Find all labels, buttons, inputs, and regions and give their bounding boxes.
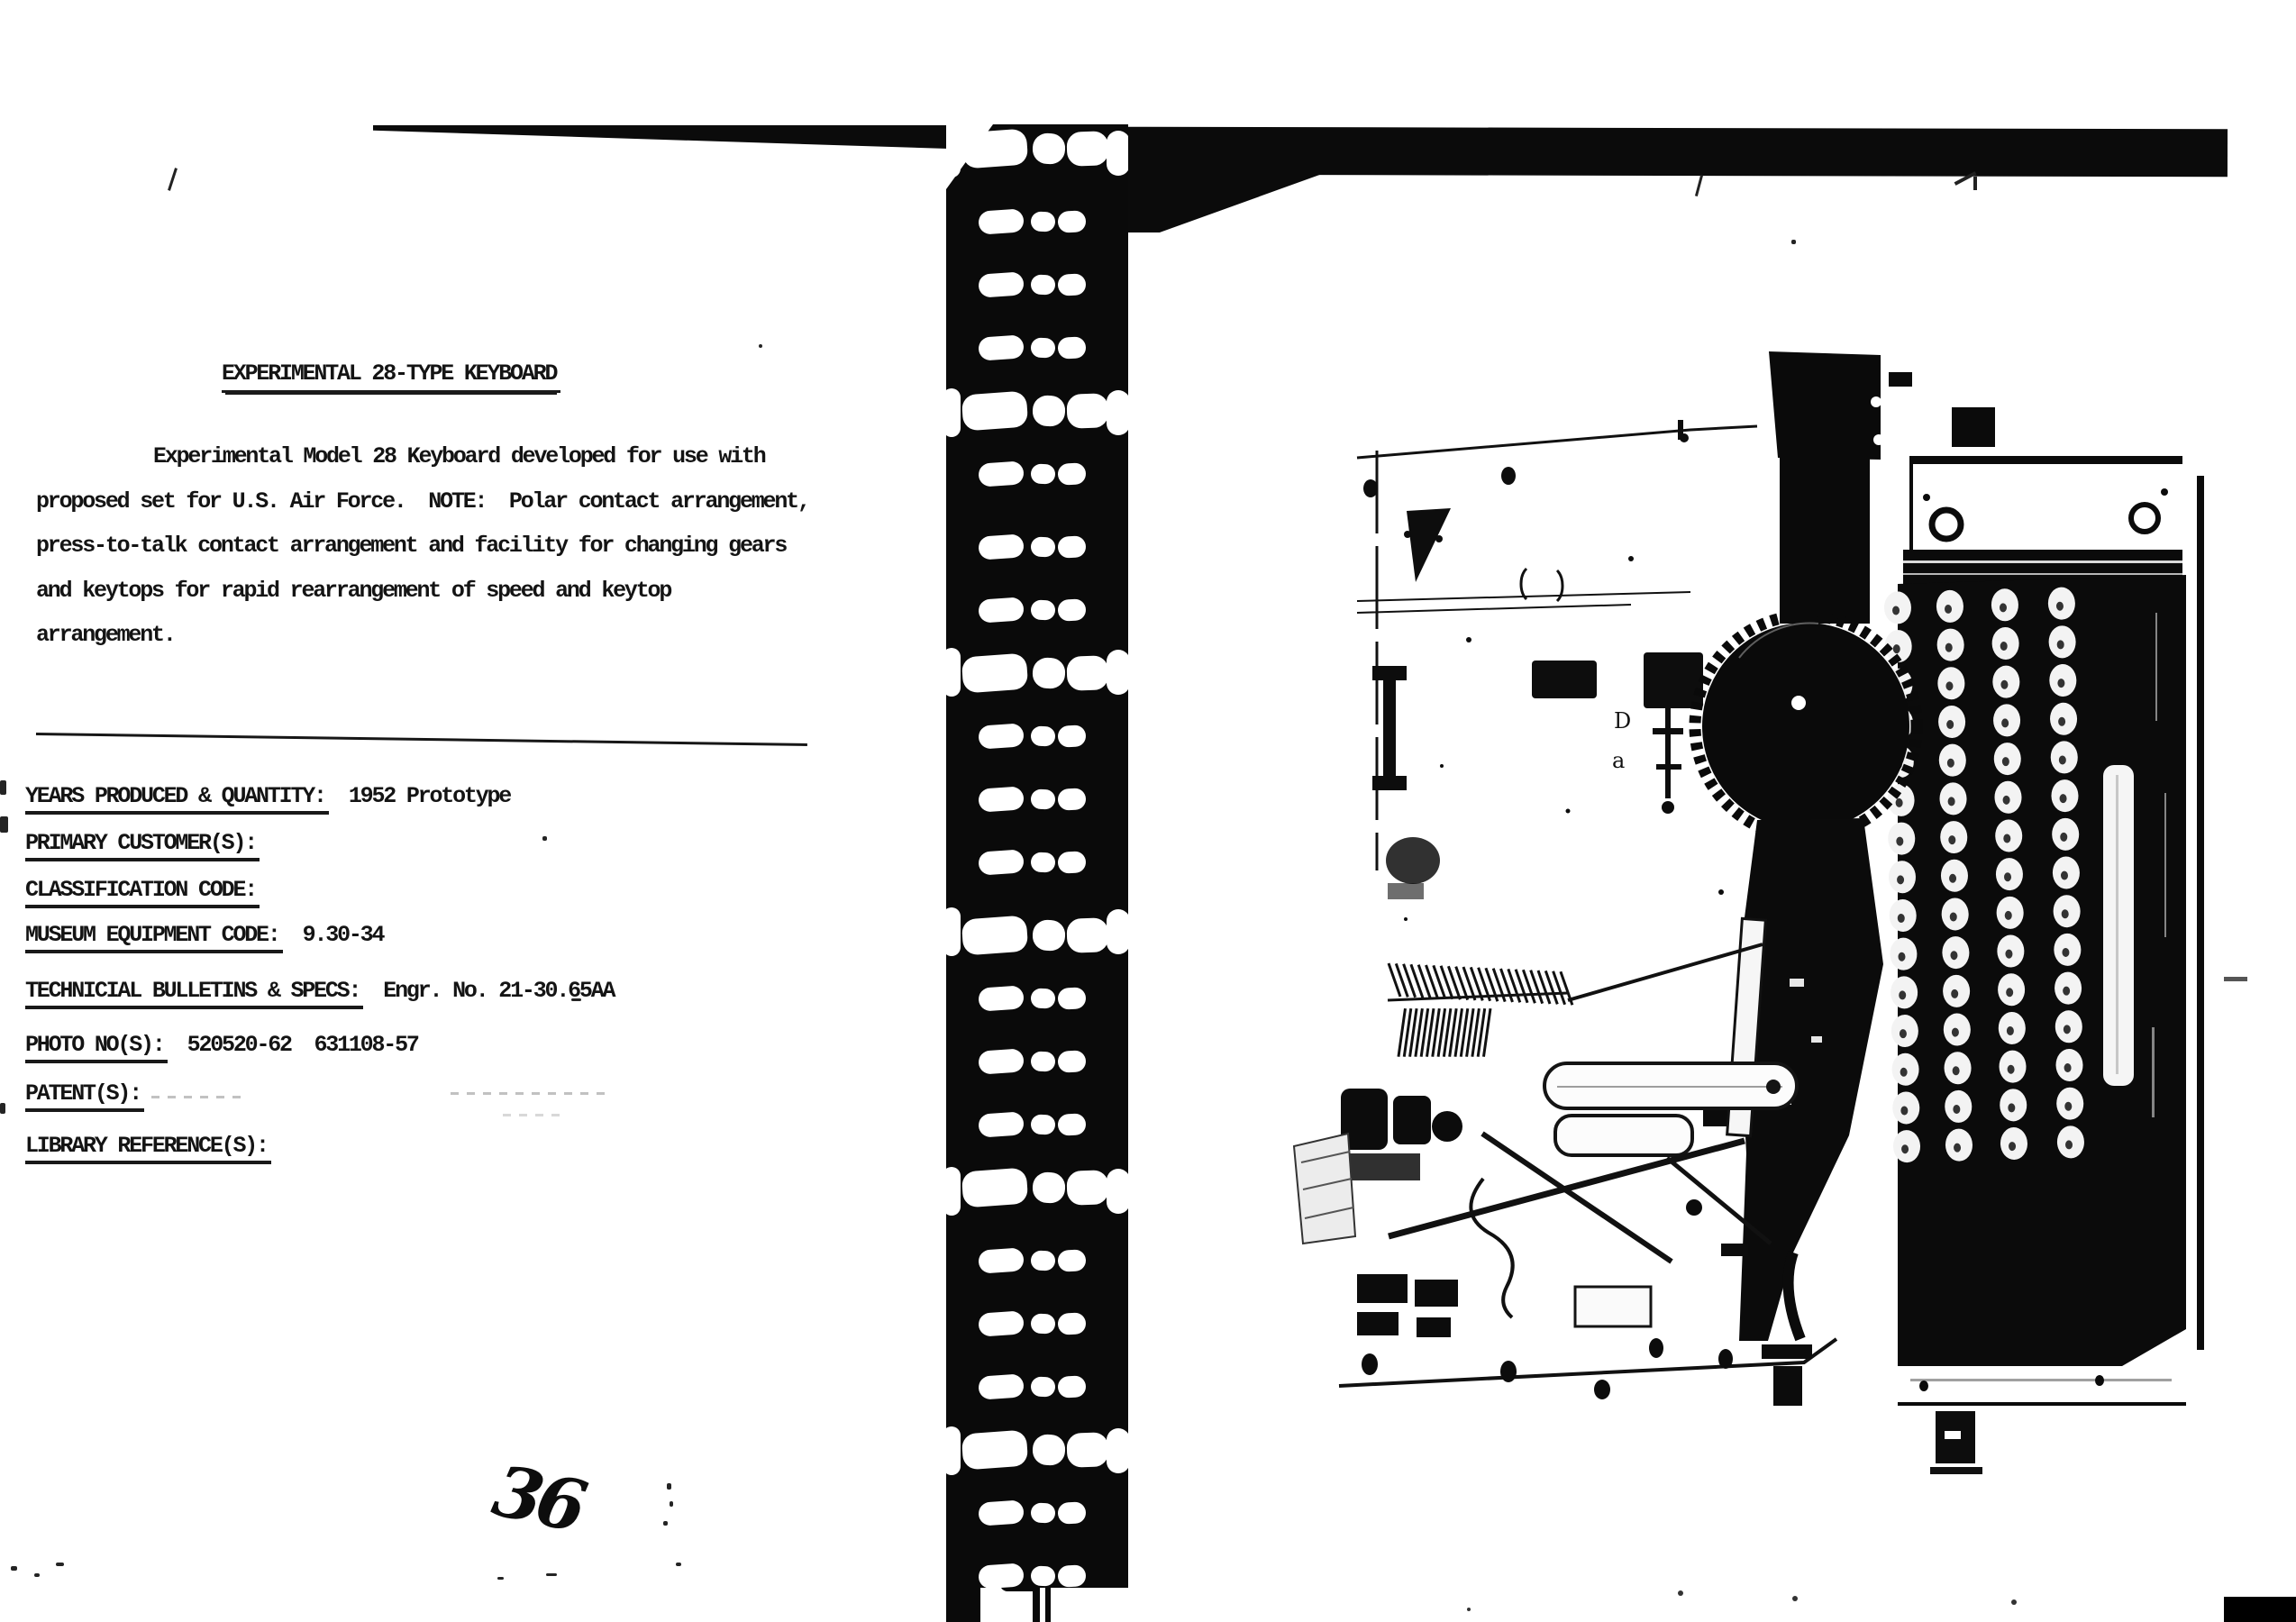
horizontal-rule	[36, 733, 807, 746]
field-label: CLASSIFICATION CODE:	[25, 877, 260, 908]
machine-plate-details	[1363, 420, 1724, 921]
keyboard-base	[1898, 1366, 2186, 1474]
gear	[1695, 615, 1917, 837]
paragraph-line: arrangement.	[36, 613, 809, 658]
paragraph-line: proposed set for U.S. Air Force. NOTE: P…	[36, 479, 809, 524]
field-label: TECHNICIAL BULLETINS & SPECS:	[25, 978, 363, 1009]
svg-text:D: D	[1614, 708, 1631, 734]
photo-right-border	[2197, 476, 2204, 1350]
field-label: MUSEUM EQUIPMENT CODE:	[25, 922, 283, 953]
scan-shadow-wedge	[373, 125, 948, 149]
field-row: TECHNICIAL BULLETINS & SPECS:Engr. No. 2…	[25, 978, 614, 1009]
field-label: PATENT(S):	[25, 1080, 144, 1112]
linkage-mechanism	[1294, 944, 1797, 1399]
scan-top-bar-ragged-edge	[1128, 173, 1325, 232]
field-row: CLASSIFICATION CODE:	[25, 877, 279, 908]
page-title: EXPERIMENTAL 28-TYPE KEYBOARD	[222, 360, 560, 393]
field-value: 520520-62 631108-57	[187, 1032, 418, 1058]
field-label: YEARS PRODUCED & QUANTITY:	[25, 783, 329, 815]
experimental-keyboard-photo: D a	[1253, 342, 2296, 1622]
field-row: MUSEUM EQUIPMENT CODE:9.30-34	[25, 922, 383, 953]
field-row: YEARS PRODUCED & QUANTITY:1952 Prototype	[25, 783, 510, 815]
paragraph-line: Experimental Model 28 Keyboard developed…	[36, 434, 809, 479]
field-label: LIBRARY REFERENCE(S):	[25, 1133, 271, 1164]
svg-text:a: a	[1612, 748, 1625, 773]
field-row: PRIMARY CUSTOMER(S):	[25, 830, 279, 861]
field-label: PHOTO NO(S):	[25, 1032, 168, 1063]
field-row: LIBRARY REFERENCE(S):	[25, 1133, 291, 1164]
field-row: PHOTO NO(S):520520-62 631108-57	[25, 1032, 418, 1063]
paragraph-line: press-to-talk contact arrangement and fa…	[36, 524, 809, 569]
handwritten-page-number: 36	[487, 1450, 588, 1548]
spiral-binding	[946, 124, 1128, 1622]
field-value: 9.30-34	[303, 922, 384, 948]
description-paragraph: Experimental Model 28 Keyboard developed…	[36, 434, 809, 658]
scan-top-bar	[1125, 127, 2228, 178]
field-value: 1952 Prototype	[349, 783, 510, 809]
field-label: PRIMARY CUSTOMER(S):	[25, 830, 260, 861]
field-row: PATENT(S):	[25, 1080, 164, 1112]
scanned-document-page: EXPERIMENTAL 28-TYPE KEYBOARD Experiment…	[0, 0, 2296, 1622]
paragraph-line: and keytops for rapid rearrangement of s…	[36, 569, 809, 614]
